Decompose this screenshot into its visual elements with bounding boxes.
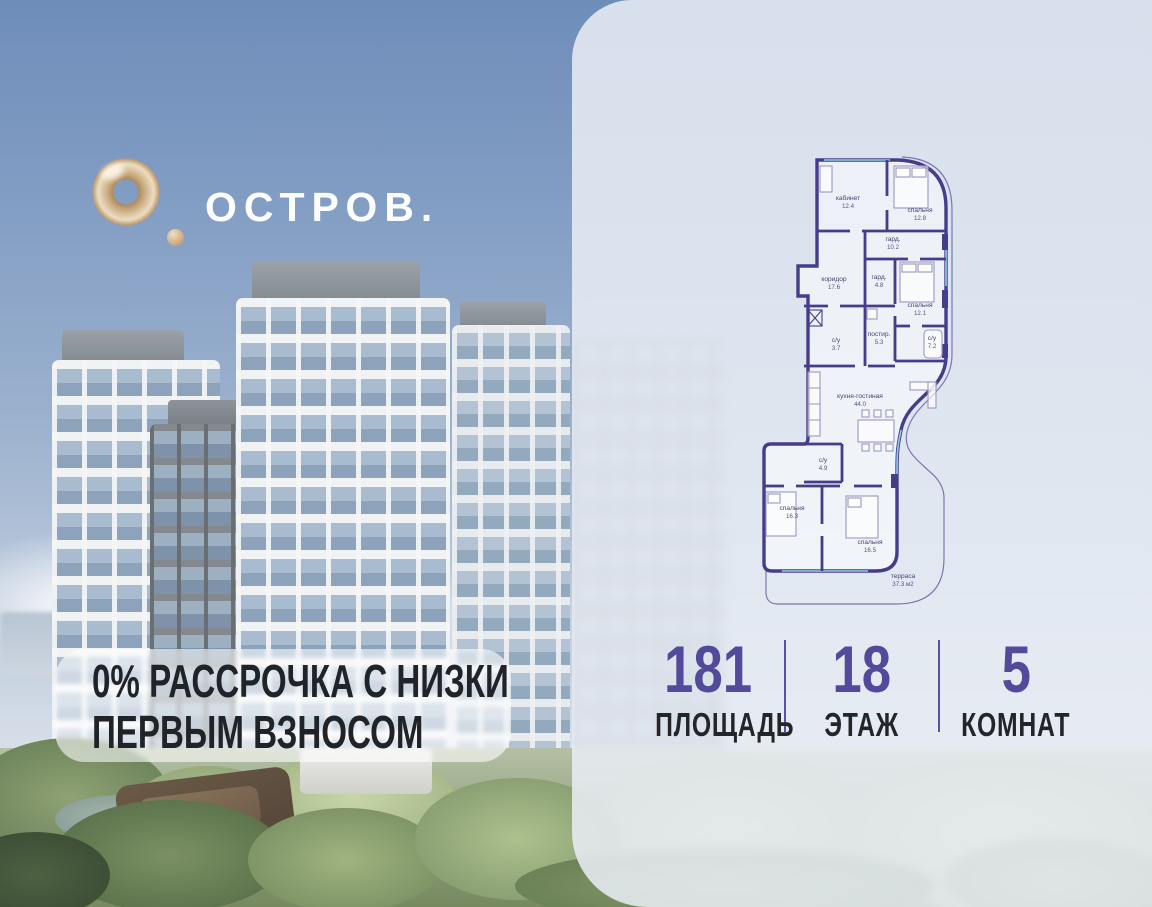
promo-line-1: 0% РАССРОЧКА С НИЗКИМ <box>92 656 394 707</box>
stat-floor: 18 ЭТАЖ <box>786 634 938 744</box>
room-label: кухня-гостиная <box>837 393 883 400</box>
room-area: 4.9 <box>819 465 828 472</box>
room-label: с/у <box>819 457 828 464</box>
room-area: 7.2 <box>928 343 937 350</box>
stat-area-label: ПЛОЩАДЬ <box>655 706 794 744</box>
room-label: кабинет <box>836 194 860 202</box>
room-label: спальня <box>857 539 882 546</box>
stat-rooms-value: 5 <box>1001 634 1030 704</box>
room-area: 12.8 <box>914 215 927 222</box>
trees <box>248 808 443 907</box>
room-label: с/у <box>832 337 841 344</box>
room-label: терраса <box>891 573 916 580</box>
room-label: гард. <box>885 236 900 243</box>
stats-row: 181 ПЛОЩАДЬ 18 ЭТАЖ 5 КОМНАТ <box>572 634 1152 744</box>
floor-plan: кабинет 12.4 спальня 12.8 гард. 10.2 кор… <box>760 144 1020 644</box>
room-label: с/у <box>928 335 937 342</box>
stat-area: 181 ПЛОЩАДЬ <box>632 634 784 744</box>
stat-floor-label: ЭТАЖ <box>825 706 899 744</box>
stat-area-value: 181 <box>664 634 752 704</box>
room-area: 17.6 <box>828 284 841 291</box>
room-label: гард. <box>871 274 886 281</box>
ad-canvas: кабинет 12.4 спальня 12.8 гард. 10.2 кор… <box>0 0 1152 907</box>
logo-ring-icon <box>92 158 160 226</box>
tower-roof <box>62 330 184 364</box>
stat-rooms-label: КОМНАТ <box>961 706 1070 744</box>
promo-line-2: ПЕРВЫМ ВЗНОСОМ <box>92 707 394 758</box>
room-area: 44.0 <box>854 401 867 408</box>
room-area: 12.1 <box>914 310 927 317</box>
info-panel: кабинет 12.4 спальня 12.8 гард. 10.2 кор… <box>572 0 1152 907</box>
stat-floor-value: 18 <box>833 634 892 704</box>
room-label: спальня <box>907 207 932 214</box>
room-label: спальня <box>907 302 932 309</box>
room-label: спальня <box>779 505 804 512</box>
room-area: 4.8 <box>875 282 884 289</box>
brand-wordmark: ОСТРОВ. <box>205 184 439 231</box>
room-area: 16.3 <box>786 513 799 520</box>
room-area: 12.4 <box>842 203 855 210</box>
room-area: 37.3 м2 <box>892 581 914 588</box>
room-area: 5.3 <box>875 339 884 346</box>
room-area: 16.5 <box>864 547 877 554</box>
promo-banner: 0% РАССРОЧКА С НИЗКИМ ПЕРВЫМ ВЗНОСОМ <box>55 649 511 762</box>
stat-rooms: 5 КОМНАТ <box>940 634 1092 744</box>
logo-dot-icon <box>167 229 184 246</box>
room-label: коридор <box>821 276 846 283</box>
room-label: постир. <box>868 331 891 338</box>
room-area: 10.2 <box>887 244 900 251</box>
room-area: 3.7 <box>832 345 841 352</box>
